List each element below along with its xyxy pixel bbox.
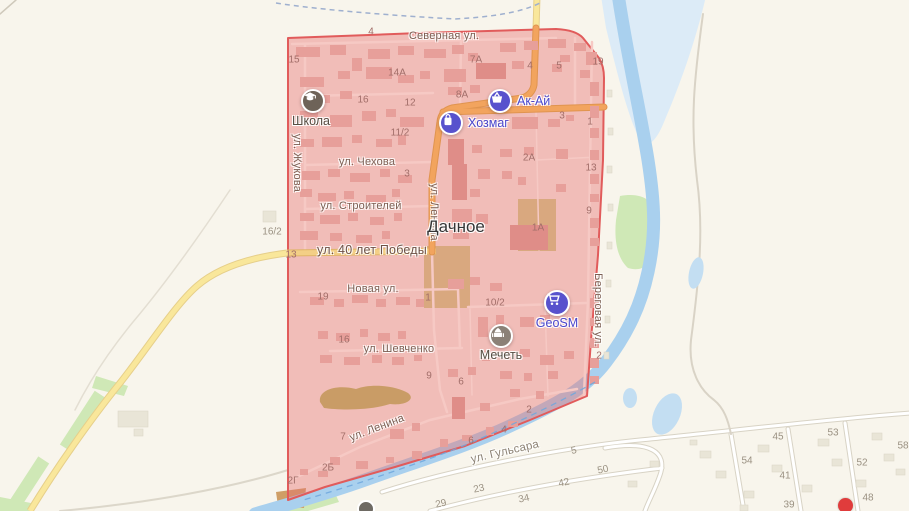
house-number: 6	[468, 436, 474, 447]
graduation-cap-icon	[303, 91, 317, 105]
house-number: 50	[596, 463, 609, 476]
street-label-novaya: Новая ул.	[347, 283, 398, 295]
house-number: 15	[288, 55, 299, 66]
house-number: 58	[897, 441, 908, 452]
street-label-chekhova: ул. Чехова	[339, 156, 395, 168]
house-number: 13	[285, 250, 296, 261]
house-number: 2	[596, 351, 602, 362]
house-number: 3	[559, 111, 565, 122]
mosque-icon	[491, 326, 505, 340]
house-number: 42	[557, 476, 570, 489]
house-number: 29	[434, 497, 447, 510]
basket-icon	[490, 91, 504, 105]
house-number: 13	[585, 163, 596, 174]
house-number: 9	[426, 371, 432, 382]
house-number: 52	[856, 458, 867, 469]
house-number: 34	[517, 492, 530, 505]
shopping-cart-icon	[546, 292, 561, 307]
house-number: 4	[368, 27, 374, 38]
road-pobedy-outside	[30, 253, 287, 511]
house-number: 10/2	[485, 298, 504, 309]
house-number: 5	[556, 61, 562, 72]
poi-khozmag[interactable]	[439, 111, 463, 135]
house-number: 2Г	[288, 476, 299, 487]
house-number: 4	[501, 425, 507, 436]
admin-boundary	[276, 3, 540, 19]
poi-akay[interactable]	[488, 89, 512, 113]
house-number: 2	[526, 405, 532, 416]
poi-label-geosm[interactable]: GeoSM	[536, 316, 578, 330]
house-number: 7	[340, 432, 346, 443]
edge-poi-circle[interactable]	[357, 500, 375, 511]
poi-label-khozmag[interactable]: Хозмаг	[468, 116, 509, 130]
house-number: 1А	[532, 223, 544, 234]
house-number: 39	[783, 500, 794, 511]
street-label-shevchenko: ул. Шевченко	[364, 343, 435, 355]
house-number: 11/2	[391, 128, 410, 139]
road-pobedy-outside-fill	[30, 253, 287, 511]
house-number: 1	[425, 293, 431, 304]
poi-label-akay[interactable]: Ак-Ай	[517, 94, 550, 108]
house-number: 53	[827, 428, 838, 439]
house-number: 2Б	[322, 463, 334, 474]
house-number: 19	[592, 57, 603, 68]
poi-label-mosque[interactable]: Мечеть	[480, 348, 522, 362]
poi-school[interactable]	[301, 89, 325, 113]
house-number: 41	[779, 471, 790, 482]
house-number: 16	[357, 95, 368, 106]
house-number: 3	[404, 169, 410, 180]
shopping-bag-icon	[441, 113, 455, 127]
street-label-pobedy: ул. 40 лет Победы	[317, 243, 427, 257]
street-label-zhukova: ул. Жукова	[291, 134, 303, 192]
house-number: 16/2	[262, 227, 281, 238]
house-number: 19	[317, 292, 328, 303]
house-number: 8А	[456, 90, 468, 101]
ponds	[623, 256, 706, 440]
house-number: 54	[741, 456, 752, 467]
house-number: 9	[586, 206, 592, 217]
street-label-beregovaya: Береговая ул.	[592, 273, 604, 347]
house-number: 1	[587, 117, 593, 128]
house-number: 12	[404, 98, 415, 109]
poi-label-school[interactable]: Школа	[292, 114, 330, 128]
map-canvas[interactable]: Северная ул. ул. Жукова ул. Чехова ул. Л…	[0, 0, 909, 511]
house-number: 4	[527, 61, 533, 72]
house-number: 23	[472, 482, 485, 495]
house-number: 45	[772, 432, 783, 443]
street-label-severnaya: Северная ул.	[409, 30, 479, 42]
poi-mosque[interactable]	[489, 324, 513, 348]
house-number: 16	[338, 335, 349, 346]
house-number: 2А	[523, 153, 535, 164]
house-number: 14А	[388, 68, 406, 79]
poi-geosm[interactable]	[544, 290, 570, 316]
place-label-dachnoye[interactable]: Дачное	[427, 217, 485, 237]
street-label-stroiteley: ул. Строителей	[320, 200, 401, 212]
house-number: 48	[862, 493, 873, 504]
house-number: 7А	[470, 55, 482, 66]
house-number: 6	[458, 377, 464, 388]
